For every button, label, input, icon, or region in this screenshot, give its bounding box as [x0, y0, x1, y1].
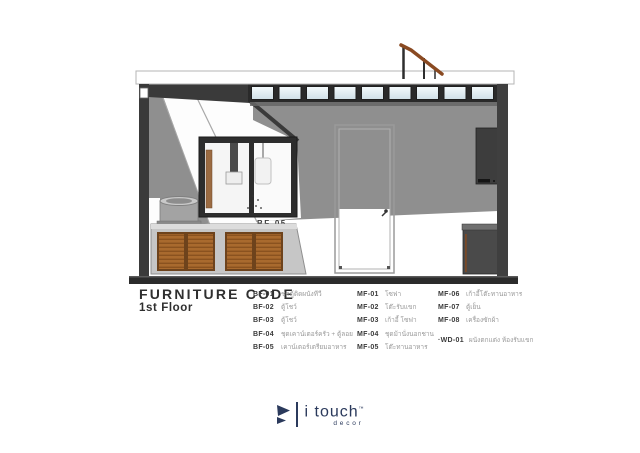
- furniture-desc: เก้าอี้ โซฟา: [385, 315, 417, 325]
- clerestory-window-row: [248, 84, 498, 106]
- furniture-desc: โซฟา: [385, 289, 401, 299]
- furniture-code: MF-06: [438, 291, 461, 298]
- legend-row: MF-01โซฟา: [357, 289, 434, 299]
- furniture-code: MF-03: [357, 317, 380, 324]
- door-foot: [339, 266, 342, 269]
- eave-shadow: [250, 102, 498, 106]
- upper-cabinet-vent: [478, 179, 490, 183]
- furniture-desc: เก้าอี้โต๊ะทานอาหาร: [466, 289, 522, 299]
- furniture-desc: เครื่องซักผ้า: [466, 315, 499, 325]
- lower-cabinet-top: [462, 224, 500, 230]
- water-heater: [255, 158, 271, 184]
- wood-door: [226, 233, 253, 270]
- window-panes: [252, 87, 494, 100]
- window-pane: [444, 87, 466, 100]
- brand-name: i touch™: [305, 401, 364, 420]
- brand-sub: decor: [305, 420, 364, 428]
- entry-door: [335, 125, 394, 273]
- window-pane: [279, 87, 301, 100]
- window-pane: [362, 87, 384, 100]
- furniture-desc: ชุดตู้ติดผนังทีวี: [281, 289, 322, 299]
- furniture-desc: โต๊ะรับแขก: [385, 302, 416, 312]
- furniture-desc: ตู้โชว์: [281, 302, 297, 312]
- furniture-code: BF-02: [253, 304, 276, 311]
- window-pane: [417, 87, 439, 100]
- legend-row: MF-07ตู้เย็น: [438, 302, 533, 312]
- furniture-code: BF-03: [253, 317, 276, 324]
- furniture-code: BF-01: [253, 291, 276, 298]
- right-wall-section: [497, 84, 508, 278]
- furniture-code: ·WD-01: [438, 337, 464, 344]
- logo-text: i touch™ decor: [305, 401, 364, 428]
- legend-row: BF-04ชุดเคาน์เตอร์ครัว + ตู้ลอย: [253, 329, 353, 339]
- legend-row: MF-02โต๊ะรับแขก: [357, 302, 434, 312]
- left-wall-detail: [140, 88, 148, 98]
- itouch-logo-icon: [276, 402, 291, 428]
- legend-row: BF-05เคาน์เตอร์เตรียมอาหาร: [253, 342, 353, 352]
- upper-cabinet: [476, 128, 499, 184]
- furniture-desc: เคาน์เตอร์เตรียมอาหาร: [281, 342, 347, 352]
- legend-row: MF-05โต๊ะทานอาหาร: [357, 342, 434, 352]
- window-pane: [307, 87, 329, 100]
- window-pane: [389, 87, 411, 100]
- furniture-code: MF-07: [438, 304, 461, 311]
- wood-post: [206, 150, 212, 208]
- wood-door: [187, 233, 214, 270]
- upper-cabinet-body: [476, 128, 499, 184]
- pendant-lamp: [226, 172, 242, 184]
- furniture-desc: โต๊ะทานอาหาร: [385, 342, 428, 352]
- legend-row: MF-08เครื่องซักผ้า: [438, 315, 533, 325]
- furniture-desc: ตู้เย็น: [466, 302, 481, 312]
- footer: i touch™ decor: [0, 401, 640, 428]
- elevation-drawing: BF-05: [0, 0, 640, 300]
- brand-wordmark: i touch: [305, 403, 359, 420]
- lower-cabinet: [462, 224, 500, 274]
- window-pane: [334, 87, 356, 100]
- legend-column-bf: BF-01ชุดตู้ติดผนังทีวี BF-02ตู้โชว์ BF-0…: [253, 289, 353, 355]
- wood-door: [158, 233, 185, 270]
- counter-bf05: [151, 224, 306, 274]
- legend-row: BF-02ตู้โชว์: [253, 302, 353, 312]
- door-lower: [339, 209, 390, 269]
- furniture-code: MF-05: [357, 344, 380, 351]
- trademark-symbol: ™: [359, 406, 364, 412]
- furniture-desc: ชุดเคาน์เตอร์ครัว + ตู้ลอย: [281, 329, 353, 339]
- fascia-band: [136, 71, 514, 84]
- furniture-code: MF-04: [357, 331, 380, 338]
- furniture-code: MF-02: [357, 304, 380, 311]
- counter-top: [151, 224, 297, 229]
- furniture-desc: ผนังตกแต่ง ห้องรับแขก: [469, 335, 534, 345]
- pot-opening: [166, 198, 192, 204]
- furniture-code: MF-01: [357, 291, 380, 298]
- door-upper: [339, 129, 390, 209]
- legend-row-wd: ·WD-01ผนังตกแต่ง ห้องรับแขก: [438, 335, 533, 345]
- window-pane: [252, 87, 274, 100]
- furniture-code: BF-04: [253, 331, 276, 338]
- railing-handrail: [401, 45, 442, 74]
- window-pane: [472, 87, 494, 100]
- furniture-desc: ตู้โชว์: [281, 315, 297, 325]
- cooking-pot: [157, 197, 201, 227]
- wood-door: [255, 233, 282, 270]
- legend-column-mf1: MF-01โซฟา MF-02โต๊ะรับแขก MF-03เก้าอี้ โ…: [357, 289, 434, 355]
- lower-cabinet-trim: [465, 234, 467, 272]
- furniture-desc: ชุดม้านั่งนอกชาน: [385, 329, 434, 339]
- legend-column-mf2: MF-06เก้าอี้โต๊ะทานอาหาร MF-07ตู้เย็น MF…: [438, 289, 533, 349]
- lower-cabinet-body: [463, 226, 499, 274]
- ground-line-highlight: [129, 276, 518, 278]
- legend-row: BF-01ชุดตู้ติดผนังทีวี: [253, 289, 353, 299]
- furniture-code: MF-08: [438, 317, 461, 324]
- legend-row: BF-03ตู้โชว์: [253, 315, 353, 325]
- legend-row: MF-06เก้าอี้โต๊ะทานอาหาร: [438, 289, 533, 299]
- door-foot: [387, 266, 390, 269]
- left-wall-section: [139, 84, 149, 278]
- logo-divider: [296, 402, 297, 427]
- itouch-logo: i touch™ decor: [276, 401, 363, 428]
- interior-window: [199, 137, 297, 217]
- furniture-code: BF-05: [253, 344, 276, 351]
- legend-row: MF-04ชุดม้านั่งนอกชาน: [357, 329, 434, 339]
- drawing-sheet: BF-05: [0, 0, 640, 453]
- legend-row: MF-03เก้าอี้ โซฟา: [357, 315, 434, 325]
- upper-cabinet-knob: [493, 180, 495, 182]
